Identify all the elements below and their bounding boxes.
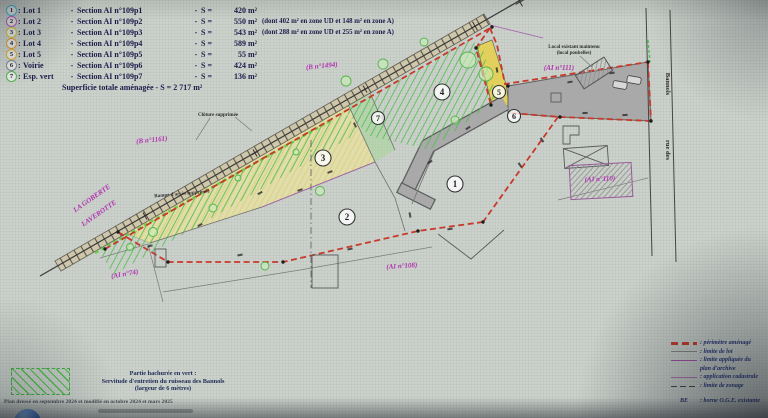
lot5-badge: 5: [6, 49, 17, 60]
purple2-line-swatch: [671, 377, 697, 378]
lot6-badge: 6: [6, 60, 17, 71]
parcel-label-ai108: (AI n°108): [386, 261, 417, 271]
legend-application-cadastrale: : application cadastrale: [671, 373, 767, 382]
lot-name: Esp. vert: [23, 72, 67, 81]
lot-name: Lot 4: [23, 39, 67, 48]
lot-note: (dont 288 m² en zone UD et 255 m² en zon…: [262, 29, 394, 36]
lot4-number-bubble: 4: [434, 84, 450, 100]
lot3-number-bubble: 3: [315, 150, 331, 166]
red-dash-swatch: [671, 342, 697, 345]
legend-borne-oge: BE: borne O.G.E. existante: [671, 397, 767, 406]
lot-section: Section AI n°109p6: [77, 61, 191, 70]
building-chevron-roof: [438, 230, 504, 259]
legend-row-lot3: 3: Lot 3- Section AI n°109p3- S =543 m² …: [6, 27, 394, 38]
svg-text:4: 4: [440, 87, 445, 97]
parcel-label-ai111: (AI n°111): [544, 64, 574, 72]
lot-section: Section AI n°109p7: [77, 72, 191, 81]
lot-section: Section AI n°109p1: [77, 6, 191, 15]
lot5-number-bubble: 5: [493, 86, 506, 99]
svg-text:1: 1: [453, 179, 458, 189]
servitude-line2: Servitude d'entretien du ruisseau des Ba…: [78, 378, 248, 386]
lot-section: Section AI n°109p2: [77, 17, 191, 26]
lot3-badge: 3: [6, 27, 17, 38]
svg-text:7: 7: [376, 114, 380, 123]
lot-name: Lot 5: [23, 50, 67, 59]
lot-area: 543 m²: [221, 28, 257, 37]
lot1-number-bubble: 1: [447, 176, 463, 192]
parcel-label-ai110: (AI n°110): [584, 174, 615, 184]
lot-area: 136 m²: [221, 72, 257, 81]
legend-plan-archive: plan d'archive: [671, 365, 767, 374]
lot-area: 589 m²: [221, 39, 257, 48]
legend-row-lot5: 5: Lot 5- Section AI n°109p5- S =55 m²: [6, 49, 394, 60]
plan-date-note: Plan dressé en septembre 2024 et modifié…: [4, 399, 173, 405]
lot-section: Section AI n°109p5: [77, 50, 191, 59]
voirie-hook: [404, 190, 428, 202]
survey-plan-photo: 1 2 3 4 5 6 7 (B n°1494) (B n°1161) (AI …: [0, 0, 768, 418]
lot-section: Section AI n°109p3: [77, 28, 191, 37]
legend-limite-appliquee: : limite appliquée du: [671, 356, 767, 365]
lot2-east-boundary: [375, 162, 405, 231]
parcel-label-b1161: (B n°1161): [136, 134, 168, 145]
legend-row-espace-vert: 7: Esp. vert- Section AI n°109p7- S =136…: [6, 71, 394, 82]
servitude-line3: (largeur de 6 mètres): [78, 385, 248, 393]
lot7-number-bubble: 7: [372, 112, 385, 125]
street-name-rue-des: rue des: [664, 140, 671, 161]
annotation-local-leader: [580, 56, 592, 67]
annotation-cloture-leader1: [196, 118, 210, 140]
annotation-cloture: Clôture supprimée: [198, 113, 239, 118]
annotation-local-line2: (local poubelles): [557, 51, 592, 56]
lot6-number-bubble: 6: [508, 110, 521, 123]
gray-line-swatch: [671, 351, 697, 352]
street-green-dash: [648, 40, 650, 62]
green-hatch-swatch: [11, 368, 70, 395]
purple-line-swatch: [671, 360, 697, 361]
street-name-bannols: Bannols: [664, 73, 671, 96]
street-edge-east: [670, 10, 676, 262]
borne-symbol: BE: [671, 397, 697, 406]
lot2-badge: 2: [6, 16, 17, 27]
lot-name: Lot 1: [23, 6, 67, 15]
total-area-line: Superficie totale aménagée - S = 2 717 m…: [62, 83, 394, 92]
lot-name: Voirie: [23, 61, 67, 70]
lot7-badge: 7: [6, 71, 17, 82]
lot-name: Lot 3: [23, 28, 67, 37]
legend-row-lot1: 1: Lot 1- Section AI n°109p1- S =420 m²: [6, 5, 394, 16]
annotation-local-line1: Local existant maintenu: [548, 45, 600, 50]
servitude-legend: Partie hachurée en vert : Servitude d'en…: [11, 368, 248, 395]
lot-legend: 1: Lot 1- Section AI n°109p1- S =420 m² …: [6, 5, 394, 92]
svg-text:2: 2: [345, 212, 350, 222]
svg-text:3: 3: [321, 153, 326, 163]
lot-area: 424 m²: [221, 61, 257, 70]
svg-text:5: 5: [497, 88, 501, 97]
lot1-badge: 1: [6, 5, 17, 16]
lot-area: 420 m²: [221, 6, 257, 15]
lot-section: Section AI n°109p4: [77, 39, 191, 48]
legend-row-lot2: 2: Lot 2- Section AI n°109p2- S =550 m² …: [6, 16, 394, 27]
cadastral-line-topright: [490, 25, 543, 38]
lot4-badge: 4: [6, 38, 17, 49]
legend-perimetre: : périmètre aménagé: [671, 339, 767, 348]
building-l-shape: [563, 126, 579, 144]
annotation-cloture-leader2: [235, 117, 252, 131]
legend-limite-zonage: : limite de zonage: [671, 382, 767, 391]
lot-area: 550 m²: [221, 17, 257, 26]
svg-text:6: 6: [512, 112, 516, 121]
legend-row-voirie: 6: Voirie- Section AI n°109p6- S =424 m²: [6, 60, 394, 71]
dark-dash-swatch: [671, 386, 697, 388]
building-rect-south: [312, 255, 338, 288]
lot-note: (dont 402 m² en zone UD et 148 m² en zon…: [262, 18, 394, 25]
legend-row-lot4: 4: Lot 4- Section AI n°109p4- S =589 m²: [6, 38, 394, 49]
certification-text-smudge: [98, 409, 193, 413]
servitude-line1: Partie hachurée en vert :: [78, 370, 248, 378]
lot-area: 55 m²: [221, 50, 257, 59]
line-style-legend: : périmètre aménagé : limite de lot : li…: [671, 339, 767, 405]
lot2-number-bubble: 2: [339, 209, 355, 225]
voirie-corridor: [508, 62, 651, 121]
lot-name: Lot 2: [23, 17, 67, 26]
legend-limite-lot: : limite de lot: [671, 348, 767, 357]
